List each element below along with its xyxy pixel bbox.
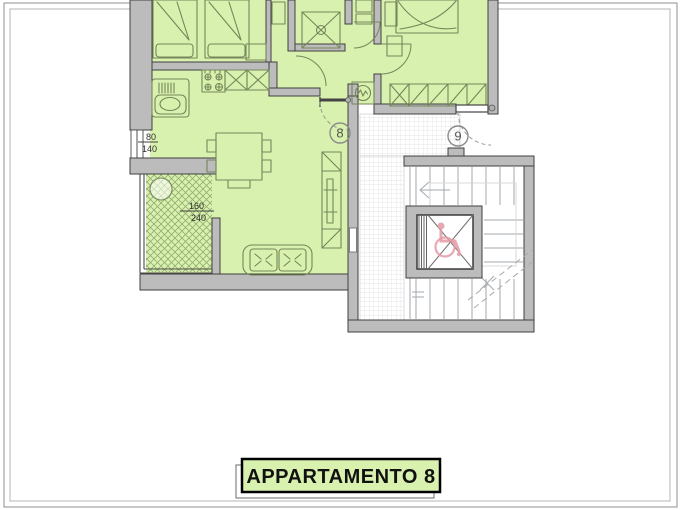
bedroom1-wall [152, 62, 269, 70]
bedroom1-partition [266, 0, 271, 62]
elevator [406, 206, 482, 278]
floor-plan-drawing: 80 140 160 240 8 9 APPARTAMENTO 8 [0, 0, 680, 510]
balcony-table [150, 178, 172, 200]
stair-treads-top [416, 167, 514, 205]
entry-wall [269, 88, 320, 96]
stair-treads-right [484, 220, 523, 262]
apartment-title: APPARTAMENTO 8 [246, 466, 435, 488]
unit-9-marker: 9 [454, 129, 461, 144]
stairwell-wall-right [524, 166, 534, 320]
dimension-160: 160 [189, 201, 204, 211]
stairwell-wall-top [404, 156, 534, 166]
bathroom-wall-left [288, 0, 295, 51]
title-box: APPARTAMENTO 8 [236, 459, 440, 498]
balcony [140, 174, 212, 273]
stairwell-wall-bottom [348, 320, 534, 332]
wall-above-balcony [130, 158, 216, 174]
balcony-door-jamb [212, 218, 220, 274]
floor-plan-page: 80 140 160 240 8 9 APPARTAMENTO 8 [0, 0, 680, 510]
dimension-80: 80 [146, 132, 156, 142]
exterior-wall-bottom [140, 274, 356, 290]
stairwell-wall-tab [448, 148, 464, 156]
bathroom-wall-right [345, 0, 352, 24]
unit-8-marker: 8 [336, 126, 343, 141]
dimension-240: 240 [191, 213, 206, 223]
exterior-wall-right [488, 0, 498, 114]
bedroom2-wall-left-lower [374, 74, 381, 104]
stairwell-wall-notch [350, 228, 357, 252]
exterior-wall-left [130, 0, 152, 130]
stair-treads-bottom [416, 279, 514, 319]
stair-direction-arrow [420, 182, 450, 198]
dimension-140: 140 [142, 144, 157, 154]
